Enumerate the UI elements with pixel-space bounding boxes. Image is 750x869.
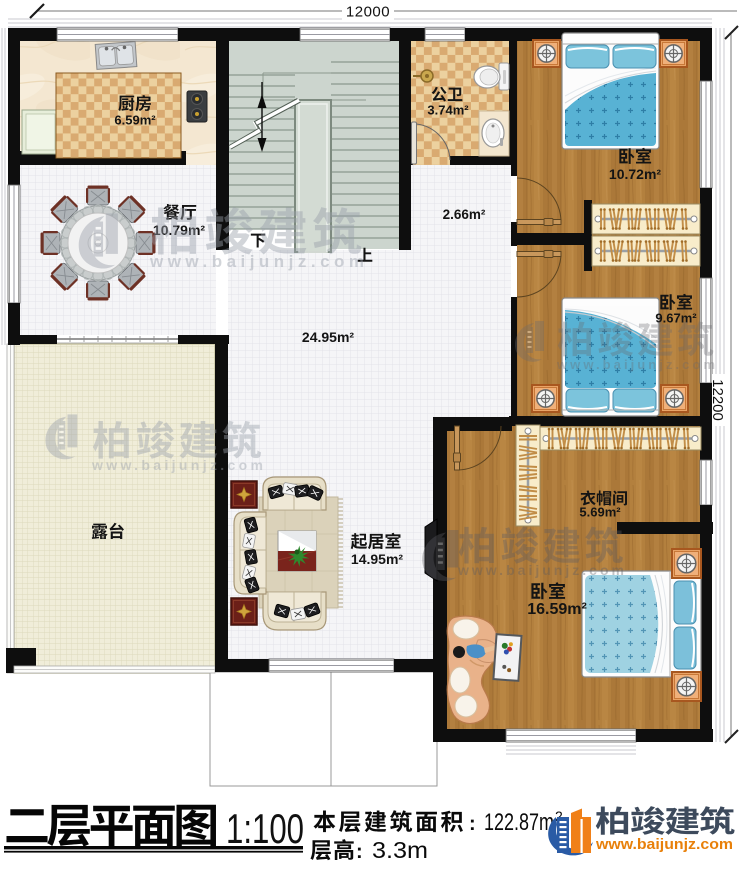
svg-text:6.59m²: 6.59m²: [114, 113, 156, 128]
svg-text::: :: [469, 813, 476, 835]
svg-text:3.74m²: 3.74m²: [427, 103, 469, 118]
svg-text:12000: 12000: [346, 4, 390, 21]
svg-text:www.baijunjz.com: www.baijunjz.com: [91, 457, 265, 473]
svg-text:5.69m²: 5.69m²: [579, 505, 621, 520]
svg-text:24.95m²: 24.95m²: [302, 329, 354, 345]
svg-text::: :: [356, 841, 363, 863]
svg-text:122.87m: 122.87m: [484, 809, 554, 836]
svg-text:10.72m²: 10.72m²: [609, 166, 661, 182]
svg-text:1:100: 1:100: [226, 805, 304, 852]
svg-text:16.59m²: 16.59m²: [527, 601, 587, 618]
svg-text:www.baijunjz.com: www.baijunjz.com: [595, 837, 733, 853]
svg-text:12200: 12200: [709, 379, 726, 421]
svg-text:3.3m: 3.3m: [372, 837, 428, 863]
svg-text:14.95m²: 14.95m²: [351, 551, 403, 567]
svg-text:www.baijunjz.com: www.baijunjz.com: [556, 357, 717, 372]
svg-text:2.66m²: 2.66m²: [443, 207, 486, 222]
svg-text:www.baijunjz.com: www.baijunjz.com: [457, 562, 626, 578]
